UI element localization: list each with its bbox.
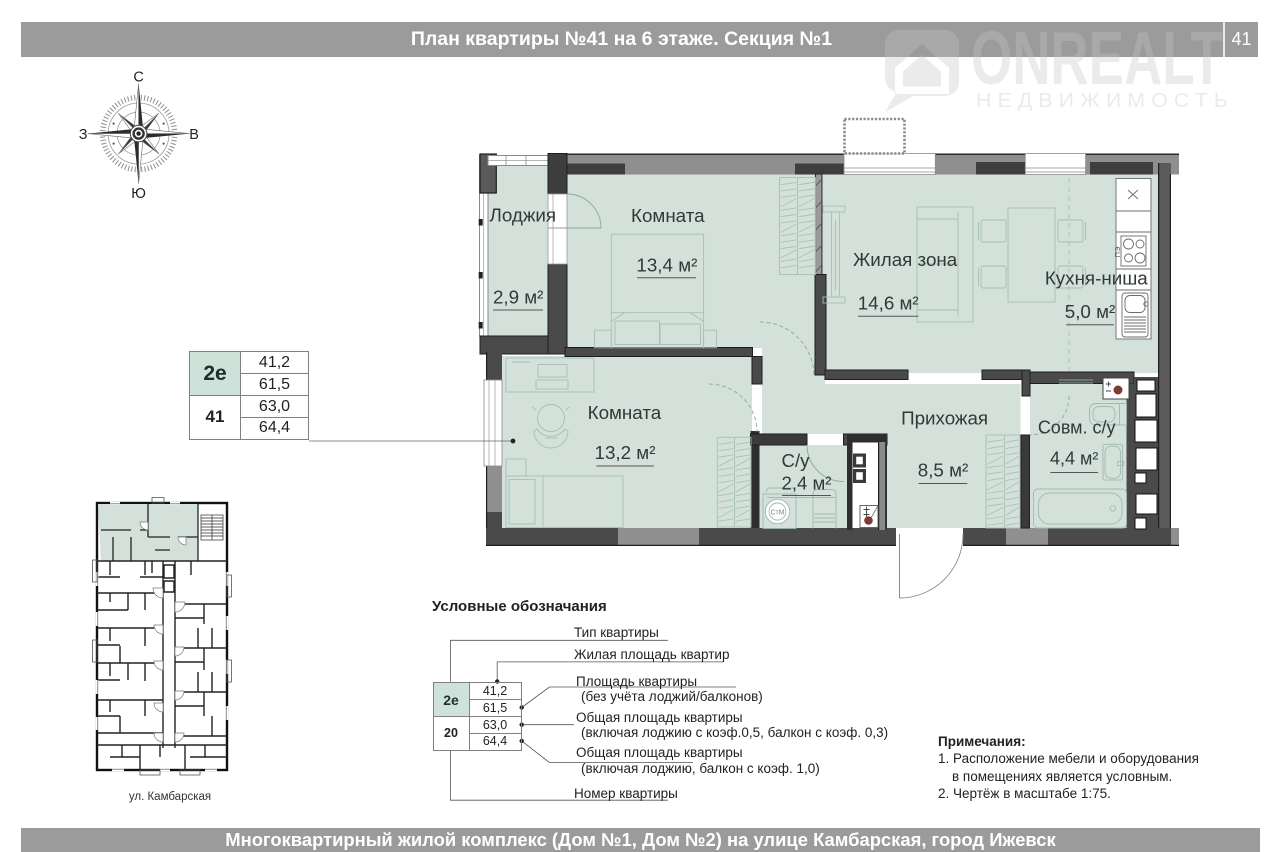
svg-text:З: З bbox=[79, 127, 88, 143]
svg-text:Комната: Комната bbox=[631, 205, 705, 226]
svg-text:13,2 м²: 13,2 м² bbox=[595, 442, 656, 463]
svg-text:2,4 м²: 2,4 м² bbox=[782, 473, 832, 494]
svg-text:С: С bbox=[133, 70, 143, 86]
svg-text:Комната: Комната bbox=[588, 402, 662, 423]
svg-text:Кухня-ниша: Кухня-ниша bbox=[1045, 268, 1148, 289]
svg-text:8,5 м²: 8,5 м² bbox=[918, 460, 969, 481]
svg-text:Лоджия: Лоджия bbox=[490, 205, 557, 226]
svg-text:13,4 м²: 13,4 м² bbox=[636, 255, 697, 276]
svg-text:Жилая зона: Жилая зона bbox=[853, 249, 958, 270]
svg-text:В: В bbox=[189, 127, 199, 143]
svg-text:С/у: С/у bbox=[782, 450, 811, 471]
svg-text:14,6 м²: 14,6 м² bbox=[858, 293, 919, 314]
svg-text:СтМ: СтМ bbox=[770, 510, 784, 517]
svg-text:5,0 м²: 5,0 м² bbox=[1065, 301, 1116, 322]
svg-text:Прихожая: Прихожая bbox=[901, 408, 988, 429]
svg-text:Совм. с/у: Совм. с/у bbox=[1038, 418, 1116, 438]
svg-text:4,4 м²: 4,4 м² bbox=[1050, 449, 1098, 469]
svg-text:ул. Камбарская: ул. Камбарская bbox=[129, 791, 211, 803]
svg-text:ПЭ: ПЭ bbox=[1113, 246, 1122, 257]
svg-text:Ю: Ю bbox=[131, 186, 146, 202]
svg-text:2,9 м²: 2,9 м² bbox=[493, 287, 544, 308]
